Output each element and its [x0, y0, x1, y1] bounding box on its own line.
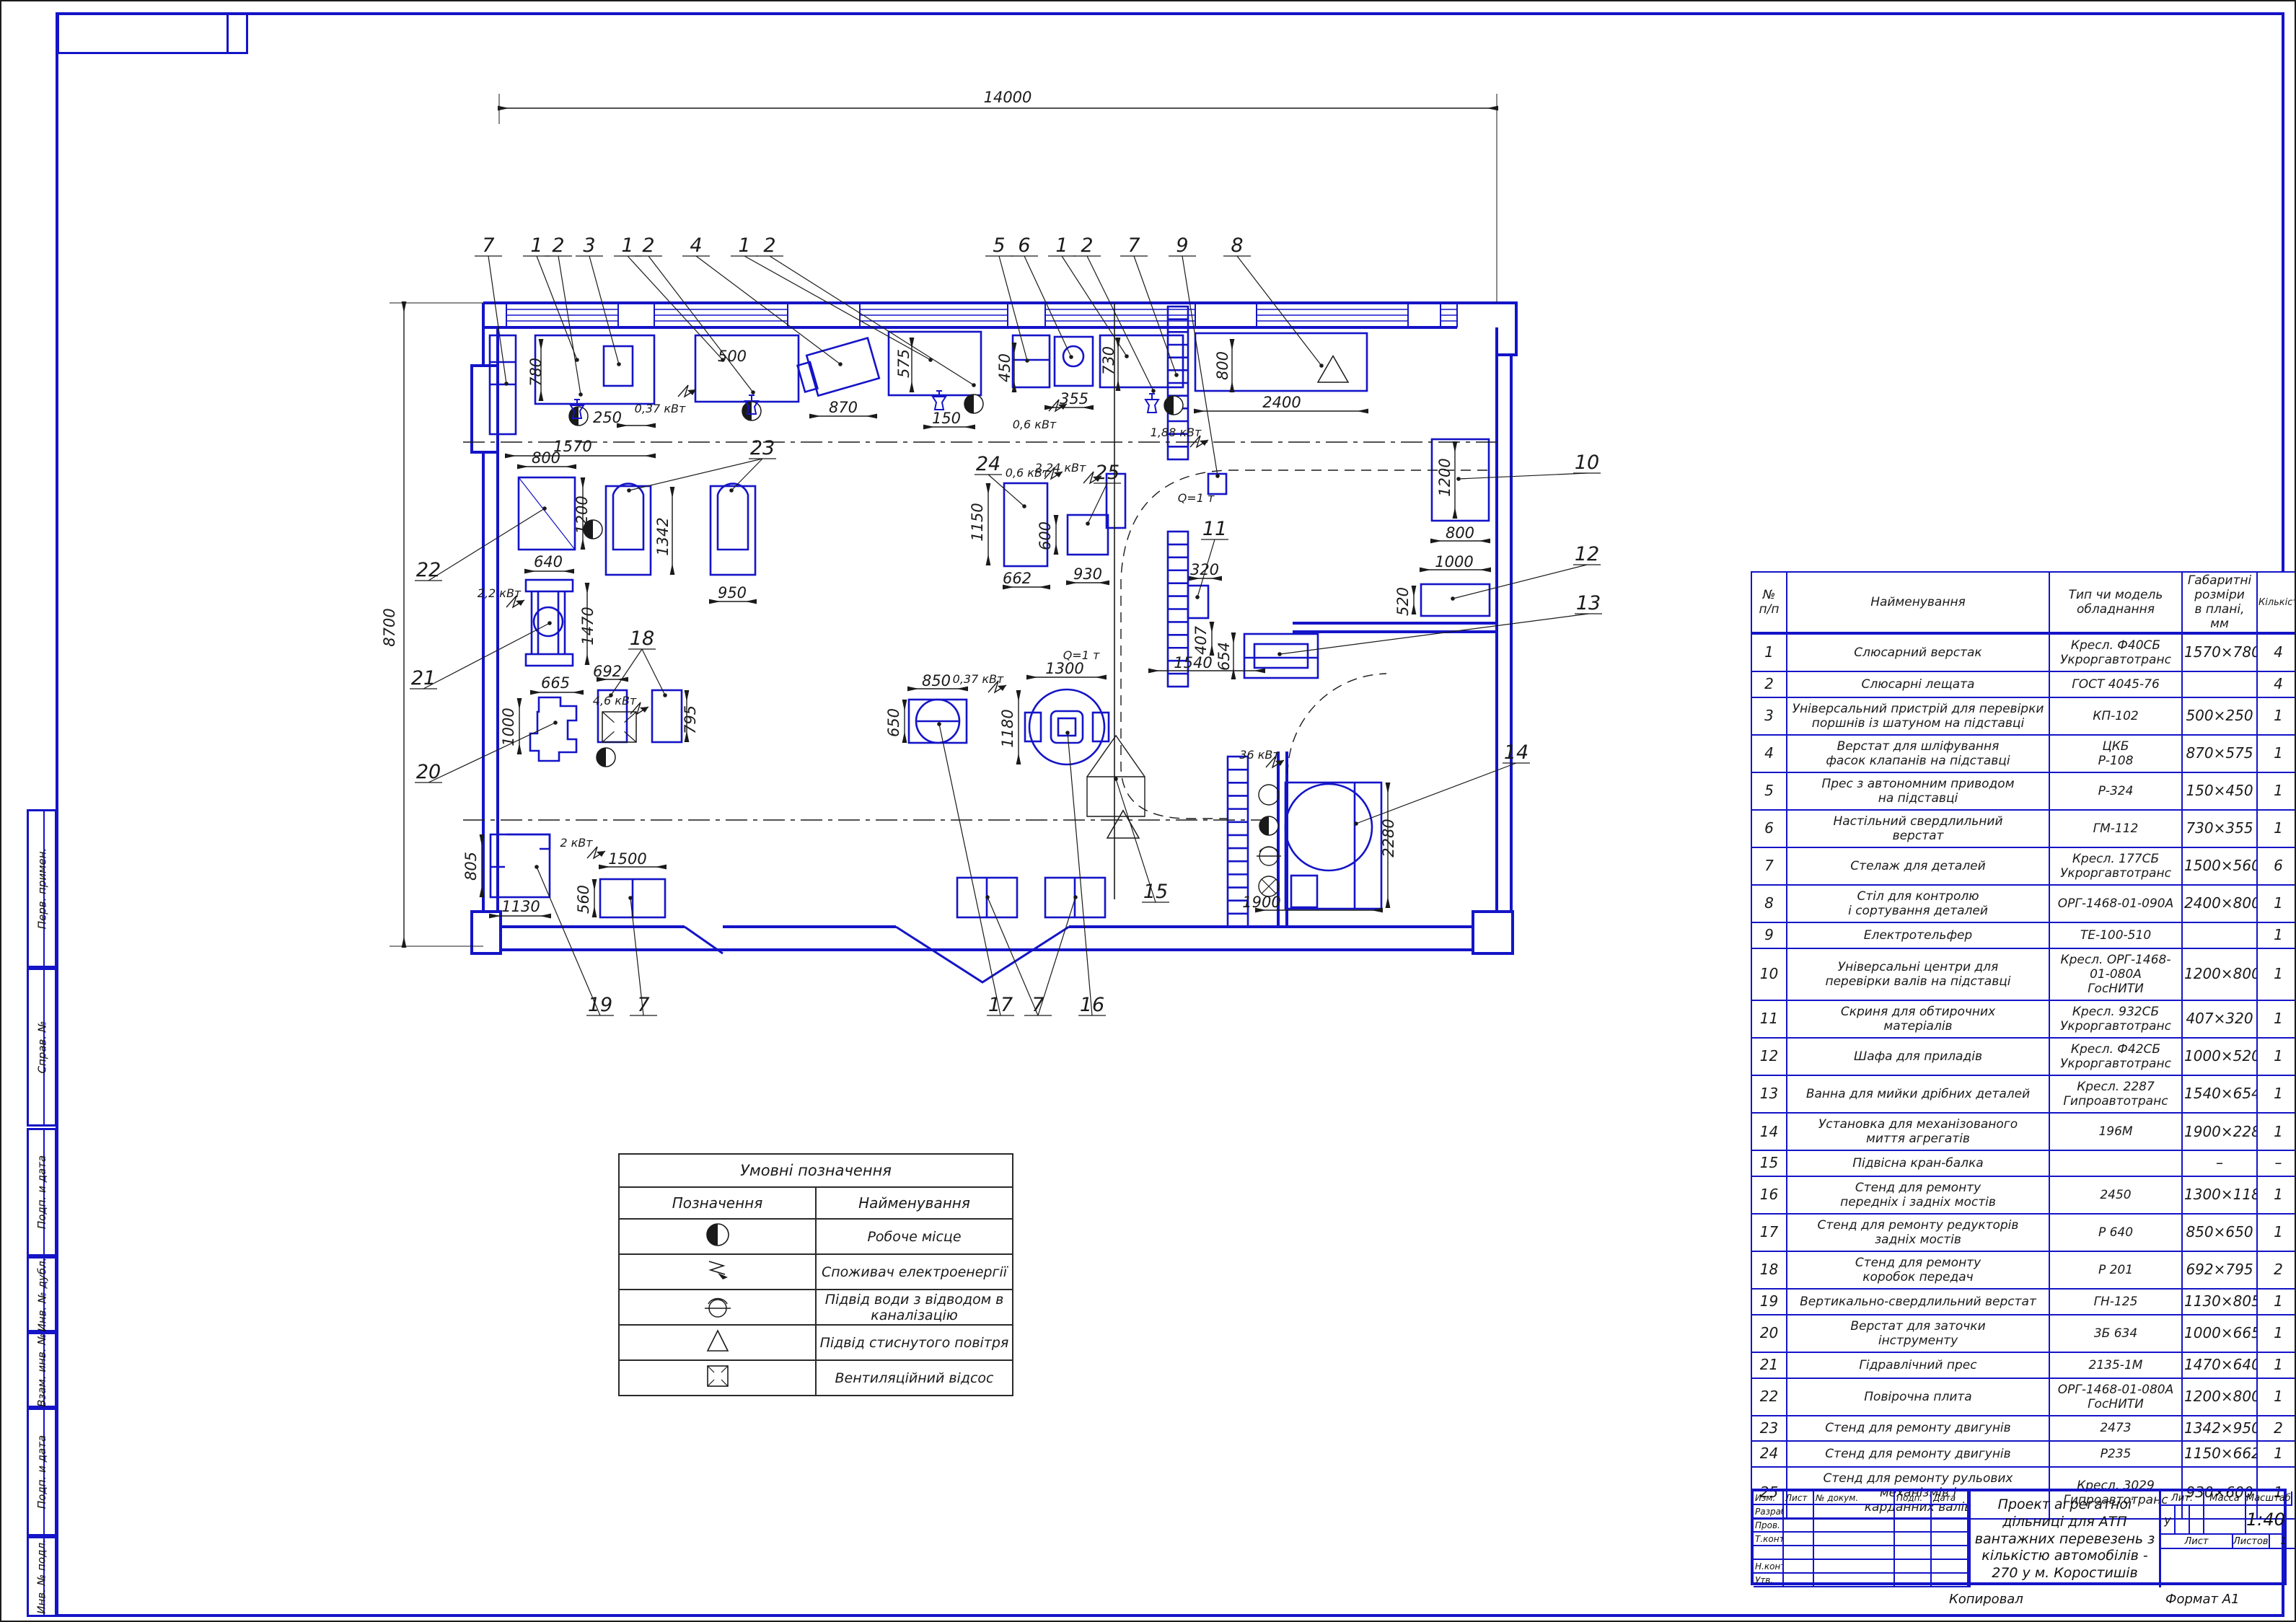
mass-label: Масса: [2204, 1491, 2246, 1506]
legend-label: Робоче місце: [816, 1219, 1013, 1254]
margin-label: Справ. №: [27, 968, 57, 1127]
equipment-model: Р 640: [2049, 1214, 2182, 1251]
equipment-name: Підвісна кран-балка: [1787, 1150, 2049, 1176]
equipment-qty: 2: [2257, 1251, 2296, 1289]
row-number: 1: [1751, 633, 1787, 671]
equipment-name: Скриня для обтирочних матеріалів: [1787, 1000, 2049, 1038]
equipment-shapes: [490, 303, 1490, 927]
dimension-label: 1540: [1174, 654, 1212, 671]
equipment-col-header: Кількість: [2257, 572, 2296, 633]
equipment-row: 6Настільний свердлильний верстатГМ-11273…: [1751, 810, 2296, 847]
equipment-size: 1900×2280: [2182, 1113, 2257, 1150]
callout-number: 11: [1202, 518, 1227, 540]
callout-number: 1: [738, 234, 750, 257]
equipment-row: 23Стенд для ремонту двигунів24731342×950…: [1751, 1416, 2296, 1442]
callout-number: 2: [763, 234, 775, 257]
equipment-size: 500×250: [2182, 697, 2257, 735]
equipment-row: 18Стенд для ремонту коробок передачР 201…: [1751, 1251, 2296, 1289]
callout-number: 25: [1095, 462, 1120, 484]
signature-cell: [1814, 1533, 1895, 1546]
legend-label: Споживач електроенергії: [816, 1254, 1013, 1290]
callout-number: 2: [552, 234, 564, 257]
dimension-label: 2400: [1262, 394, 1301, 411]
equipment-row: 11Скриня для обтирочних матеріалівКресл.…: [1751, 1000, 2296, 1038]
dimension-label: 780: [527, 358, 545, 387]
signature-cell: [1814, 1519, 1895, 1533]
equipment-name: Стенд для ремонту редукторів задніх мост…: [1787, 1214, 2049, 1251]
callout-number: 1: [621, 234, 633, 257]
equipment-qty: 6: [2257, 847, 2296, 885]
equipment-row: 15Підвісна кран-балка––: [1751, 1150, 2296, 1176]
equipment-qty: 1: [2257, 1441, 2296, 1467]
titleblock-header-cell: Дата: [1932, 1491, 1969, 1505]
equipment-size: 1130×805: [2182, 1289, 2257, 1315]
callout-number: 10: [1575, 451, 1599, 474]
equipment-name: Слюсарні лещата: [1787, 671, 2049, 697]
equipment-row: 16Стенд для ремонту передніх і задніх мо…: [1751, 1176, 2296, 1214]
equipment-size: 1500×560: [2182, 847, 2257, 885]
equipment-qty: 1: [2257, 1214, 2296, 1251]
row-number: 2: [1751, 671, 1787, 697]
electric-consumer-symbol: [619, 1254, 816, 1290]
equipment-size: 850×650: [2182, 1214, 2257, 1251]
legend-label: Вентиляційний відсос: [816, 1360, 1013, 1396]
dimension-label: 1342: [654, 517, 672, 555]
margin-label: Подп. и дата: [27, 1408, 57, 1536]
legend-col-symbol: Позначення: [619, 1187, 816, 1219]
callout-number: 1: [1055, 234, 1068, 257]
equipment-size: 1200×800: [2182, 1378, 2257, 1416]
dimension-label: 1470: [579, 607, 597, 645]
equipment-row: 2Слюсарні лещатаГОСТ 4045-764: [1751, 671, 2296, 697]
callout-number: 7: [637, 994, 649, 1016]
equipment-qty: 1: [2257, 1000, 2296, 1038]
sheet-label: Лист: [2161, 1535, 2233, 1549]
signature-cell: [1932, 1519, 1969, 1533]
equipment-row: 7Стелаж для деталейКресл. 177СБ Укроргав…: [1751, 847, 2296, 885]
equipment-size: 870×575: [2182, 735, 2257, 772]
sheets-label: Листов: [2233, 1535, 2270, 1549]
dimension-label: 665: [541, 674, 570, 692]
equipment-row: 22Повірочна плитаОРГ-1468-01-080А ГосНИТ…: [1751, 1378, 2296, 1416]
equipment-size: [2182, 671, 2257, 697]
ventilation-symbol: [619, 1360, 816, 1396]
equipment-row: 13Ванна для мийки дрібних деталейКресл. …: [1751, 1075, 2296, 1113]
dimension-label: 640: [534, 553, 563, 570]
equipment-qty: 1: [2257, 1075, 2296, 1113]
equipment-model: 2473: [2049, 1416, 2182, 1442]
equipment-row: 10Універсальні центри для перевірки валі…: [1751, 948, 2296, 1000]
equipment-row: 4Верстат для шліфування фасок клапанів н…: [1751, 735, 2296, 772]
dimension-lines: [390, 94, 1497, 946]
equipment-model: Кресл. 932СБ Укроргавтотранс: [2049, 1000, 2182, 1038]
power-note: 2,24 кВт: [1035, 461, 1086, 475]
equipment-qty: 1: [2257, 735, 2296, 772]
equipment-qty: 1: [2257, 922, 2296, 948]
dimension-label: 800: [532, 449, 560, 467]
equipment-qty: 1: [2257, 697, 2296, 735]
power-note: Q=1 т: [1178, 491, 1215, 505]
equipment-model: ГОСТ 4045-76: [2049, 671, 2182, 697]
sheets-value: 1: [2270, 1535, 2296, 1549]
equipment-row: 9ЕлектротельферТЕ-100-5101: [1751, 922, 2296, 948]
titleblock-header-cell: Лист: [1784, 1491, 1814, 1505]
scale-value: 1:40: [2246, 1506, 2287, 1535]
dimension-label: 450: [996, 353, 1013, 382]
signature-cell: [1784, 1505, 1814, 1519]
signature-cell: [1784, 1560, 1814, 1574]
dimension-label: 8700: [381, 608, 398, 646]
equipment-name: Верстат для заточки інструменту: [1787, 1315, 2049, 1352]
signature-cell: [1784, 1533, 1814, 1546]
dimension-label: 575: [895, 349, 912, 378]
equipment-model: ГМ-112: [2049, 810, 2182, 847]
equipment-table: № п/пНайменуванняТип чи модель обладнанн…: [1751, 571, 2287, 1520]
callout-number: 9: [1176, 234, 1188, 257]
callout-number: 3: [583, 234, 595, 257]
equipment-model: Кресл. Ф42СБ Укроргавтотранс: [2049, 1038, 2182, 1075]
drawing-sheet: 7123124125612798222120197232425181115177…: [0, 0, 2296, 1622]
row-number: 10: [1751, 948, 1787, 1000]
row-number: 15: [1751, 1150, 1787, 1176]
row-number: 11: [1751, 1000, 1787, 1038]
margin-label: Подп. и дата: [27, 1128, 57, 1256]
row-number: 16: [1751, 1176, 1787, 1214]
equipment-qty: 1: [2257, 1378, 2296, 1416]
equipment-qty: 1: [2257, 810, 2296, 847]
dimension-label: 355: [1060, 390, 1088, 407]
equipment-model: ТЕ-100-510: [2049, 922, 2182, 948]
row-number: 24: [1751, 1441, 1787, 1467]
equipment-name: Універсальний пристрій для перевірки пор…: [1787, 697, 2049, 735]
document-title: Проект агрегатної дільниці для АТП ванта…: [1969, 1491, 2161, 1587]
callout-number: 6: [1018, 234, 1030, 257]
dimension-label: 850: [922, 672, 951, 689]
legend-label: Підвід води з відводом в каналізацію: [816, 1290, 1013, 1325]
signature-cell: [1895, 1560, 1932, 1574]
equipment-qty: 1: [2257, 885, 2296, 922]
equipment-col-header: Габаритні розміри в плані, мм: [2182, 572, 2257, 633]
equipment-size: 1300×1180: [2182, 1176, 2257, 1214]
power-note: 36 кВт: [1239, 748, 1280, 762]
equipment-size: 1000×665: [2182, 1315, 2257, 1352]
legend-title: Умовні позначення: [619, 1154, 1013, 1187]
equipment-name: Стенд для ремонту передніх і задніх мост…: [1787, 1176, 2049, 1214]
legend-label: Підвід стиснутого повітря: [816, 1325, 1013, 1360]
power-note: 1,88 кВт: [1151, 426, 1202, 439]
equipment-model: 2450: [2049, 1176, 2182, 1214]
power-note: 2 кВт: [560, 836, 593, 850]
signature-cell: [1784, 1574, 1814, 1587]
callout-number: 7: [482, 234, 494, 257]
equipment-col-header: № п/п: [1751, 572, 1787, 633]
equipment-size: 1200×800: [2182, 948, 2257, 1000]
equipment-size: 1342×950: [2182, 1416, 2257, 1442]
equipment-col-header: Тип чи модель обладнання: [2049, 572, 2182, 633]
signature-cell: [1932, 1533, 1969, 1546]
equipment-row: 19Вертикально-свердлильний верстатГН-125…: [1751, 1289, 2296, 1315]
dimension-label: 795: [682, 705, 699, 734]
dimension-label: 560: [575, 885, 592, 914]
signature-cell: [1784, 1546, 1814, 1560]
equipment-row: 8Стіл для контролю і сортування деталейО…: [1751, 885, 2296, 922]
scale-label: Масштаб: [2246, 1491, 2292, 1506]
equipment-name: Електротельфер: [1787, 922, 2049, 948]
row-number: 3: [1751, 697, 1787, 735]
equipment-size: 1540×654: [2182, 1075, 2257, 1113]
equipment-size: 730×355: [2182, 810, 2257, 847]
equipment-size: 1150×662: [2182, 1441, 2257, 1467]
equipment-name: Слюсарний верстак: [1787, 633, 2049, 671]
equipment-model: Кресл. 177СБ Укроргавтотранс: [2049, 847, 2182, 885]
title-block-right: Лит. Масса Масштаб у 1:40 Лист Листов 1: [2161, 1491, 2284, 1587]
equipment-model: ГН-125: [2049, 1289, 2182, 1315]
signature-cell: [1895, 1505, 1932, 1519]
signature-row-label: Пров.: [1754, 1519, 1784, 1533]
equipment-model: ЦКБ Р-108: [2049, 735, 2182, 772]
callout-number: 15: [1143, 881, 1168, 903]
titleblock-header-cell: Изм.: [1754, 1491, 1784, 1505]
compressed-air-symbol: [619, 1325, 816, 1360]
dimension-label: 800: [1214, 351, 1231, 380]
margin-label: Инв. № подл.: [27, 1536, 57, 1617]
signature-cell: [1784, 1519, 1814, 1533]
dimension-label: 1500: [608, 850, 646, 868]
equipment-name: Настільний свердлильний верстат: [1787, 810, 2049, 847]
callout-number: 23: [750, 437, 775, 459]
row-number: 13: [1751, 1075, 1787, 1113]
row-number: 22: [1751, 1378, 1787, 1416]
margin-label: Взам. инв. №: [27, 1332, 57, 1408]
equipment-row: 3Універсальний пристрій для перевірки по…: [1751, 697, 2296, 735]
signature-row-label: Т.контр.: [1754, 1533, 1784, 1546]
dimension-label: 930: [1073, 565, 1102, 583]
dimension-label: 654: [1215, 642, 1233, 671]
signature-cell: [1814, 1560, 1895, 1574]
equipment-name: Ванна для мийки дрібних деталей: [1787, 1075, 2049, 1113]
callout-number: 17: [988, 994, 1013, 1016]
legend-col-name: Найменування: [816, 1187, 1013, 1219]
row-number: 17: [1751, 1214, 1787, 1251]
equipment-model: Кресл. ОРГ-1468-01-080А ГосНИТИ: [2049, 948, 2182, 1000]
callout-number: 22: [416, 559, 441, 581]
format-label: Формат А1: [2165, 1592, 2240, 1607]
equipment-model: Р 201: [2049, 1251, 2182, 1289]
equipment-model: ОРГ-1468-01-090А: [2049, 885, 2182, 922]
callout-number: 19: [588, 994, 612, 1016]
dimension-label: 1900: [1242, 894, 1280, 911]
equipment-name: Універсальні центри для перевірки валів …: [1787, 948, 2049, 1000]
workplace-symbol: [619, 1219, 816, 1254]
lit-value: у: [2161, 1506, 2176, 1535]
dimension-label: 520: [1394, 587, 1412, 616]
equipment-name: Вертикально-свердлильний верстат: [1787, 1289, 2049, 1315]
callout-number: 14: [1504, 741, 1529, 764]
equipment-qty: 1: [2257, 1289, 2296, 1315]
row-number: 7: [1751, 847, 1787, 885]
callout-number: 5: [993, 234, 1005, 257]
dimension-label: 805: [462, 852, 480, 881]
signature-row-label: Разраб.: [1754, 1505, 1784, 1519]
equipment-model: 3Б 634: [2049, 1315, 2182, 1352]
equipment-model: Р-324: [2049, 772, 2182, 810]
dimension-label: 662: [1003, 570, 1032, 587]
dimension-label: 692: [593, 663, 622, 680]
equipment-qty: 1: [2257, 1315, 2296, 1352]
equipment-name: Стенд для ремонту двигунів: [1787, 1441, 2049, 1467]
equipment-model: ОРГ-1468-01-080А ГосНИТИ: [2049, 1378, 2182, 1416]
callout-number: 1: [530, 234, 542, 257]
signature-cell: [1932, 1546, 1969, 1560]
signature-cell: [1932, 1560, 1969, 1574]
equipment-name: Шафа для приладів: [1787, 1038, 2049, 1075]
legend-row: Підвід води з відводом в каналізацію: [619, 1290, 1013, 1325]
callout-number: 2: [1081, 234, 1093, 257]
row-number: 12: [1751, 1038, 1787, 1075]
signature-row-label: Н.контр.: [1754, 1560, 1784, 1574]
equipment-qty: 4: [2257, 633, 2296, 671]
copied-label: Копировал: [1949, 1592, 2023, 1607]
equipment-qty: 2: [2257, 1416, 2296, 1442]
dimension-label: 1300: [1045, 660, 1083, 677]
dimension-label: 800: [1446, 524, 1474, 542]
legend-table: Умовні позначення Позначення Найменуванн…: [618, 1153, 1013, 1396]
signature-cell: [1814, 1505, 1895, 1519]
callout-number: 8: [1231, 234, 1243, 257]
equipment-name: Стелаж для деталей: [1787, 847, 2049, 885]
dimension-label: 1200: [573, 495, 591, 534]
callout-number: 7: [1032, 994, 1044, 1016]
dimension-label: 14000: [984, 89, 1032, 106]
equipment-size: 1000×520: [2182, 1038, 2257, 1075]
equipment-row: 1Слюсарний верстакКресл. Ф40СБ Укроргавт…: [1751, 633, 2296, 671]
signature-cell: [1932, 1574, 1969, 1587]
row-number: 5: [1751, 772, 1787, 810]
power-note: 4,6 кВт: [593, 694, 637, 708]
callout-number: 2: [642, 234, 654, 257]
equipment-name: Стенд для ремонту коробок передач: [1787, 1251, 2049, 1289]
row-number: 18: [1751, 1251, 1787, 1289]
equipment-size: 692×795: [2182, 1251, 2257, 1289]
equipment-size: [2182, 922, 2257, 948]
row-number: 20: [1751, 1315, 1787, 1352]
equipment-name: Установка для механізованого миття агрег…: [1787, 1113, 2049, 1150]
row-number: 4: [1751, 735, 1787, 772]
equipment-row: 5Прес з автономним приводом на підставці…: [1751, 772, 2296, 810]
equipment-name: Гідравлічний прес: [1787, 1352, 2049, 1378]
equipment-row: 20Верстат для заточки інструменту3Б 6341…: [1751, 1315, 2296, 1352]
equipment-qty: 1: [2257, 1113, 2296, 1150]
equipment-qty: –: [2257, 1150, 2296, 1176]
equipment-model: [2049, 1150, 2182, 1176]
signature-cell: [1814, 1574, 1895, 1587]
equipment-row: 24Стенд для ремонту двигунівР2351150×662…: [1751, 1441, 2296, 1467]
callout-number: 24: [976, 453, 1000, 475]
equipment-col-header: Найменування: [1787, 572, 2049, 633]
signature-cell: [1895, 1574, 1932, 1587]
callout-number: 12: [1575, 543, 1599, 565]
callout-number: 20: [416, 761, 441, 783]
equipment-model: КП-102: [2049, 697, 2182, 735]
equipment-row: 17Стенд для ремонту редукторів задніх мо…: [1751, 1214, 2296, 1251]
equipment-size: 1570×780: [2182, 633, 2257, 671]
signature-cell: [1895, 1533, 1932, 1546]
dimension-label: 1000: [500, 708, 517, 746]
legend-row: Робоче місце: [619, 1219, 1013, 1254]
signature-row-label: Утв.: [1754, 1574, 1784, 1587]
equipment-size: 2400×800: [2182, 885, 2257, 922]
equipment-size: 407×320: [2182, 1000, 2257, 1038]
dimension-label: 150: [932, 410, 961, 427]
equipment-model: Р235: [2049, 1441, 2182, 1467]
lit-label: Лит.: [2161, 1491, 2204, 1506]
equipment-model: Кресл. 2287 Гипроавтотранс: [2049, 1075, 2182, 1113]
row-number: 8: [1751, 885, 1787, 922]
power-note: 0,37 кВт: [953, 672, 1004, 686]
signature-cell: [1932, 1505, 1969, 1519]
power-note: 0,6 кВт: [1013, 418, 1057, 431]
row-number: 19: [1751, 1289, 1787, 1315]
equipment-row: 12Шафа для приладівКресл. Ф42СБ Укроргав…: [1751, 1038, 2296, 1075]
callout-number: 16: [1080, 994, 1104, 1016]
equipment-row: 21Гідравлічний прес2135-1М1470×6401: [1751, 1352, 2296, 1378]
legend-row: Вентиляційний відсос: [619, 1360, 1013, 1396]
title-block: Изм.Лист№ докум.Подп.ДатаРазраб.Пров.Т.к…: [1751, 1489, 2287, 1585]
row-number: 21: [1751, 1352, 1787, 1378]
callout-number: 7: [1127, 234, 1140, 257]
equipment-model: 196М: [2049, 1113, 2182, 1150]
dimension-label: 320: [1190, 561, 1219, 578]
equipment-model: Кресл. Ф40СБ Укроргавтотранс: [2049, 633, 2182, 671]
callout-number: 13: [1576, 592, 1601, 614]
equipment-qty: 1: [2257, 1038, 2296, 1075]
signature-cell: [1895, 1519, 1932, 1533]
title-block-signatures: Изм.Лист№ докум.Подп.ДатаРазраб.Пров.Т.к…: [1754, 1491, 1969, 1587]
dimension-label: 950: [718, 584, 747, 601]
dimension-label: 250: [593, 409, 622, 426]
equipment-size: –: [2182, 1150, 2257, 1176]
titleblock-header-cell: № докум.: [1814, 1491, 1895, 1505]
equipment-size: 150×450: [2182, 772, 2257, 810]
equipment-qty: 1: [2257, 772, 2296, 810]
water-drain-symbol: [619, 1290, 816, 1325]
signature-cell: [1895, 1546, 1932, 1560]
margin-label: Инв. № дубл.: [27, 1256, 57, 1332]
dimension-label: 1130: [501, 898, 540, 915]
row-number: 23: [1751, 1416, 1787, 1442]
equipment-row: 14Установка для механізованого миття агр…: [1751, 1113, 2296, 1150]
equipment-name: Стенд для ремонту двигунів: [1787, 1416, 2049, 1442]
dimension-label: 1200: [1436, 458, 1453, 496]
signature-cell: [1814, 1546, 1895, 1560]
dimension-label: 650: [885, 708, 902, 737]
power-note: 0,37 кВт: [635, 402, 686, 415]
dimension-label: 1000: [1435, 553, 1473, 570]
legend-row: Підвід стиснутого повітря: [619, 1325, 1013, 1360]
dimension-label: 1180: [999, 709, 1016, 747]
dimension-label: 500: [718, 348, 747, 365]
row-number: 14: [1751, 1113, 1787, 1150]
legend-row: Споживач електроенергії: [619, 1254, 1013, 1290]
dimension-label: 730: [1100, 346, 1117, 375]
row-number: 9: [1751, 922, 1787, 948]
dimension-label: 1150: [969, 503, 986, 541]
equipment-name: Прес з автономним приводом на підставці: [1787, 772, 2049, 810]
callout-number: 21: [411, 667, 436, 689]
plan-symbols: [506, 356, 1348, 896]
equipment-qty: 4: [2257, 671, 2296, 697]
dimension-label: 2280: [1380, 819, 1397, 857]
